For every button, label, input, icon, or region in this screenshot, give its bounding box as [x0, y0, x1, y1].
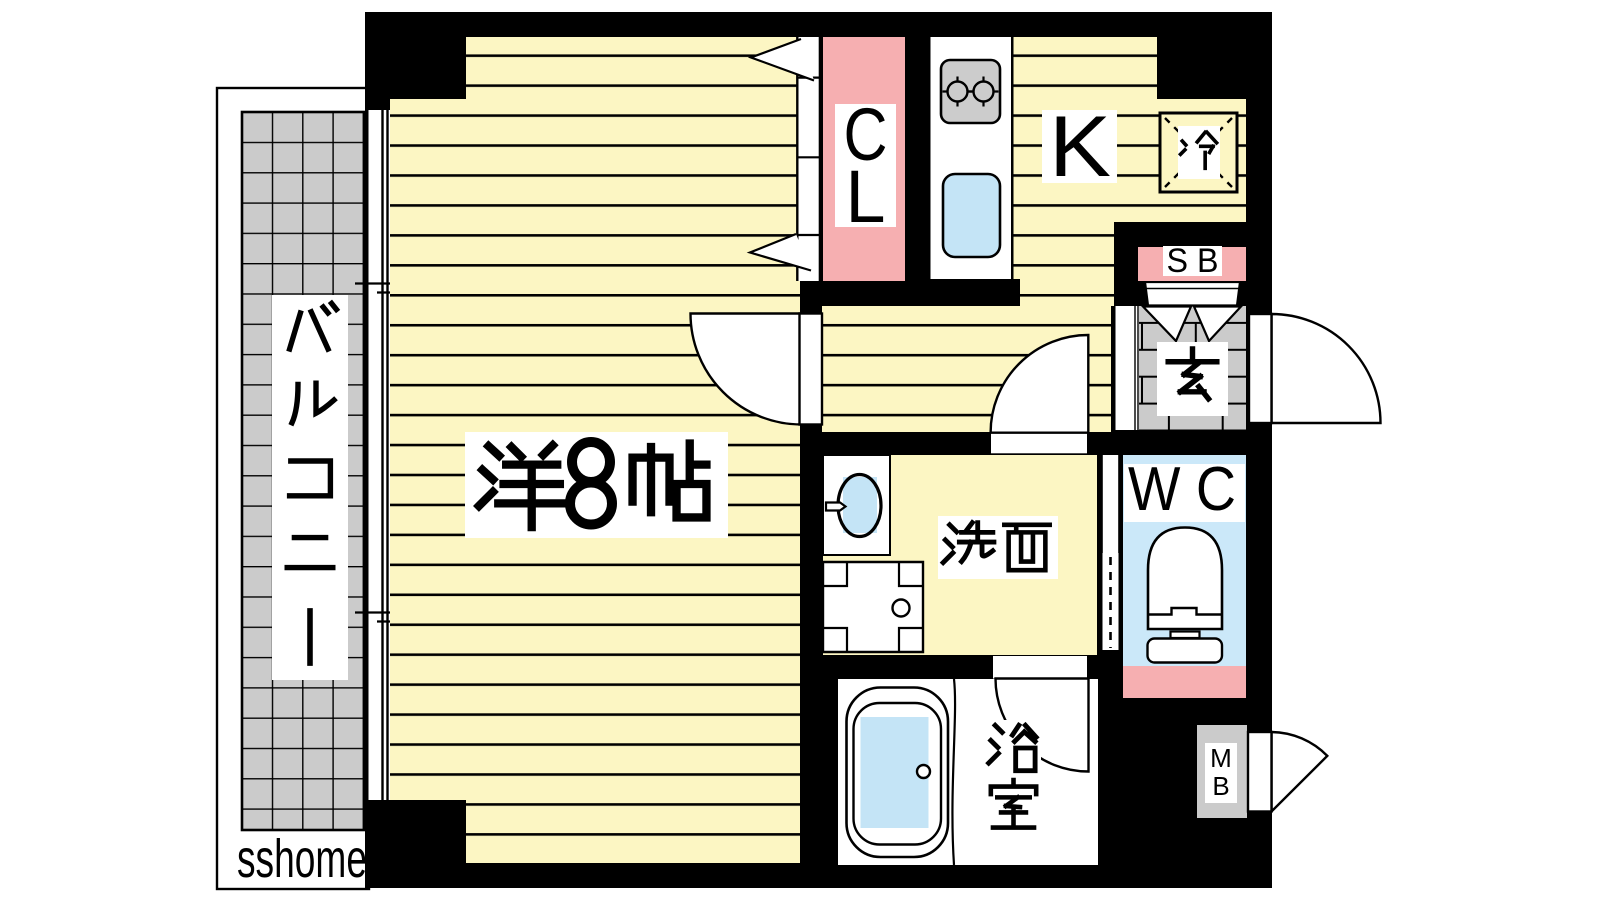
svg-text:L: L	[846, 155, 886, 238]
svg-text:B: B	[1212, 771, 1229, 801]
svg-text:M: M	[1210, 743, 1232, 773]
svg-text:K: K	[1049, 99, 1111, 195]
svg-text:S B: S B	[1167, 242, 1219, 280]
svg-text:W C: W C	[1128, 455, 1236, 524]
svg-text:sshome: sshome	[237, 829, 367, 889]
